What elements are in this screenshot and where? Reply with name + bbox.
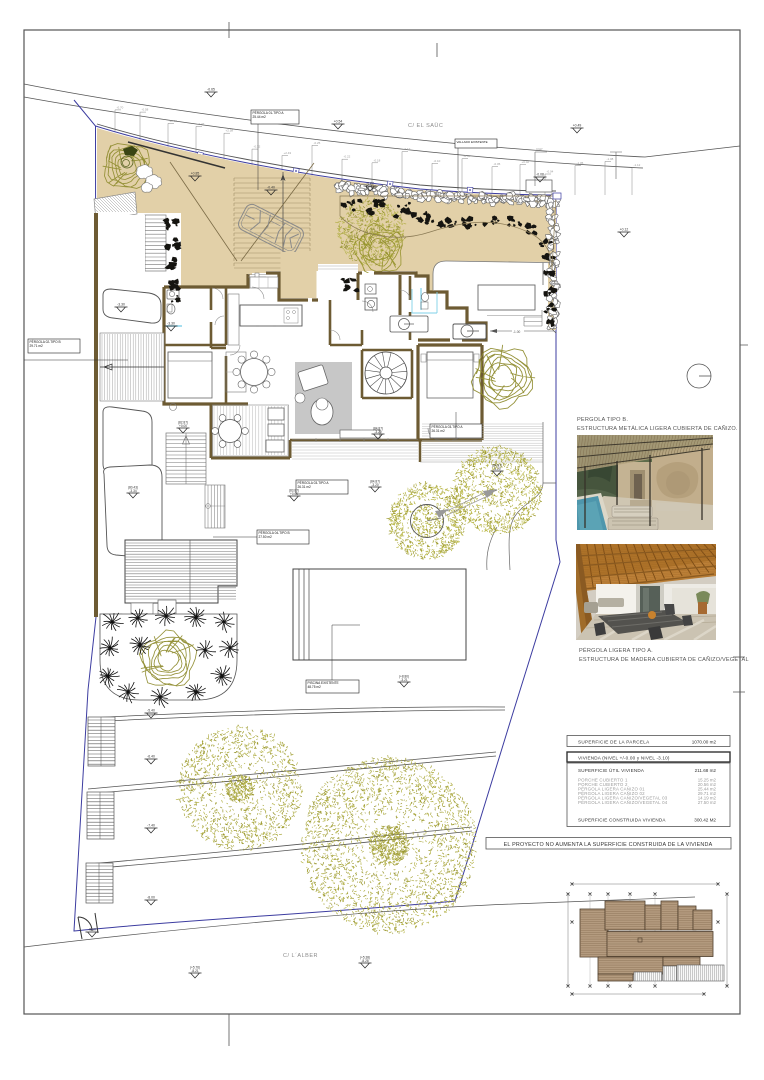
- svg-text:-3.20: -3.20: [371, 483, 378, 487]
- svg-text:-3.34: -3.34: [129, 489, 136, 493]
- svg-text:-0.08: -0.08: [464, 154, 471, 158]
- svg-text:SUPERFICIE DE LA PARCELA: SUPERFICIE DE LA PARCELA: [578, 740, 650, 745]
- svg-text:26.31 m2: 26.31 m2: [298, 485, 312, 489]
- svg-text:-0.12: -0.12: [404, 147, 411, 151]
- svg-text:-7.40: -7.40: [147, 824, 155, 828]
- svg-text:-3.20: -3.20: [493, 467, 500, 471]
- svg-text:-0.04: -0.04: [547, 170, 554, 174]
- svg-text:PERGOLA TIPO B.: PERGOLA TIPO B.: [577, 417, 628, 423]
- svg-text:SUPERFICIE CONSTRUIDA VIVIENDA: SUPERFICIE CONSTRUIDA VIVIENDA: [578, 818, 666, 823]
- svg-text:-8.00: -8.00: [147, 896, 155, 900]
- svg-text:26.31 m2: 26.31 m2: [432, 429, 446, 433]
- svg-text:-0.40: -0.40: [267, 186, 275, 190]
- svg-text:SUPERFICIE ÚTIL VIVIENDA: SUPERFICIE ÚTIL VIVIENDA: [578, 767, 645, 773]
- svg-text:-0.25: -0.25: [314, 141, 321, 145]
- svg-text:PÉRGOLA LIGERA CAÑIZO/VEGETAL: PÉRGOLA LIGERA CAÑIZO/VEGETAL 04: [578, 800, 668, 805]
- svg-text:211.68 m2: 211.68 m2: [695, 768, 717, 773]
- svg-text:25.44 m2: 25.44 m2: [253, 115, 267, 119]
- svg-text:27.50 m2: 27.50 m2: [698, 800, 717, 805]
- svg-text:-6.40: -6.40: [147, 755, 155, 759]
- svg-text:ESTRUCTURA DE MADERA CUBIERTA: ESTRUCTURA DE MADERA CUBIERTA DE CAÑIZO/…: [579, 656, 749, 663]
- svg-text:C/ EL SAÜC: C/ EL SAÜC: [408, 122, 443, 129]
- svg-text:-0.05: -0.05: [494, 162, 501, 166]
- svg-text:-0.02: -0.02: [366, 182, 374, 186]
- svg-text:+2.58: +2.58: [226, 129, 234, 133]
- svg-text:+0.12: +0.12: [620, 228, 629, 232]
- svg-text:PÉRGOLA LIGERA TIPO A.: PÉRGOLA LIGERA TIPO A.: [579, 647, 653, 654]
- svg-text:-1.08: -1.08: [607, 157, 614, 161]
- svg-text:+0.00: +0.00: [290, 492, 298, 496]
- svg-text:29.71 m2: 29.71 m2: [30, 344, 44, 348]
- svg-text:VIVIENDA (NIVEL +/-0.00 y NIVE: VIVIENDA (NIVEL +/-0.00 y NIVEL -3.10): [578, 756, 670, 761]
- svg-text:C/ L´ALBER: C/ L´ALBER: [283, 953, 318, 959]
- svg-text:-1.00: -1.00: [513, 330, 520, 334]
- svg-text:+0.49: +0.49: [573, 124, 582, 128]
- svg-text:-0.22: -0.22: [344, 155, 351, 159]
- svg-text:-0.65: -0.65: [207, 88, 215, 92]
- svg-text:+0.02: +0.02: [522, 160, 530, 164]
- svg-text:VALLADO EXISTENTE: VALLADO EXISTENTE: [457, 140, 488, 144]
- svg-text:-0.10: -0.10: [434, 159, 441, 163]
- svg-text:+0.00: +0.00: [179, 424, 187, 428]
- svg-text:-0.18: -0.18: [374, 158, 381, 162]
- svg-text:1070.00 m2: 1070.00 m2: [692, 740, 717, 745]
- svg-text:+2.43: +2.43: [284, 151, 292, 155]
- svg-text:-3.30: -3.30: [117, 303, 125, 307]
- svg-text:-0.32: -0.32: [254, 145, 261, 149]
- svg-text:-8.21: -8.21: [191, 969, 198, 973]
- svg-text:-0.47: -0.47: [198, 122, 205, 126]
- svg-text:-5.40: -5.40: [147, 709, 155, 713]
- svg-text:CGP: CGP: [536, 147, 543, 151]
- svg-text:+2.93: +2.93: [170, 119, 178, 123]
- svg-text:-1.05: -1.05: [577, 161, 584, 165]
- svg-text:+0.85: +0.85: [191, 172, 200, 176]
- svg-text:+0.54: +0.54: [334, 120, 343, 124]
- svg-text:27.50 m2: 27.50 m2: [259, 535, 273, 539]
- svg-text:-0.70: -0.70: [117, 105, 124, 109]
- svg-text:EL PROYECTO NO AUMENTA LA SUPE: EL PROYECTO NO AUMENTA LA SUPERFICIE CON…: [504, 842, 713, 848]
- svg-text:-3.20: -3.20: [374, 430, 381, 434]
- svg-text:-3.30: -3.30: [167, 322, 175, 326]
- svg-text:48.75 m2: 48.75 m2: [308, 685, 322, 689]
- svg-text:ESTRUCTURA METÁLICA LIGERA CUB: ESTRUCTURA METÁLICA LIGERA CUBIERTA DE C…: [577, 425, 738, 432]
- svg-text:-1.12: -1.12: [634, 163, 641, 167]
- svg-text:-3.21: -3.21: [400, 678, 407, 682]
- svg-text:300.42 M2: 300.42 M2: [694, 818, 716, 823]
- svg-text:-0.08: -0.08: [536, 173, 544, 177]
- svg-text:-0.58: -0.58: [142, 108, 149, 112]
- svg-text:-8.28: -8.28: [361, 959, 368, 963]
